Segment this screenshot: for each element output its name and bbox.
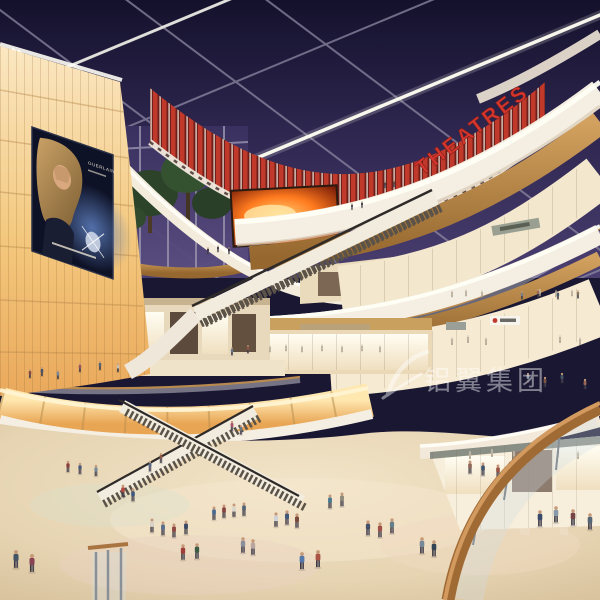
mannequin bbox=[451, 290, 453, 297]
storefront-sign-red bbox=[490, 316, 520, 325]
watermark-text: 铝翼集团 bbox=[424, 366, 548, 397]
mannequin bbox=[579, 337, 581, 345]
mannequin bbox=[467, 335, 469, 343]
mannequin bbox=[481, 290, 483, 297]
mannequin bbox=[555, 290, 557, 297]
mannequin bbox=[539, 289, 541, 296]
person bbox=[583, 379, 587, 390]
mannequin bbox=[341, 345, 343, 352]
mannequin bbox=[379, 345, 381, 352]
mannequin bbox=[485, 337, 487, 345]
mannequin bbox=[571, 289, 573, 296]
person bbox=[560, 373, 564, 384]
mannequin bbox=[321, 344, 323, 351]
mannequin bbox=[451, 337, 453, 345]
mannequin bbox=[361, 344, 363, 351]
mannequin bbox=[301, 345, 303, 352]
scene-svg: THEATRES bbox=[0, 0, 600, 600]
mannequin bbox=[491, 449, 493, 457]
mall-atrium-rendering: THEATRES bbox=[0, 0, 600, 600]
storefront-sign-gray bbox=[446, 322, 466, 330]
bottom-left-railing bbox=[88, 544, 128, 600]
mannequin bbox=[285, 344, 287, 351]
mannequin bbox=[469, 451, 471, 459]
mannequin bbox=[269, 345, 271, 352]
mannequin bbox=[559, 335, 561, 343]
mannequin bbox=[465, 289, 467, 296]
